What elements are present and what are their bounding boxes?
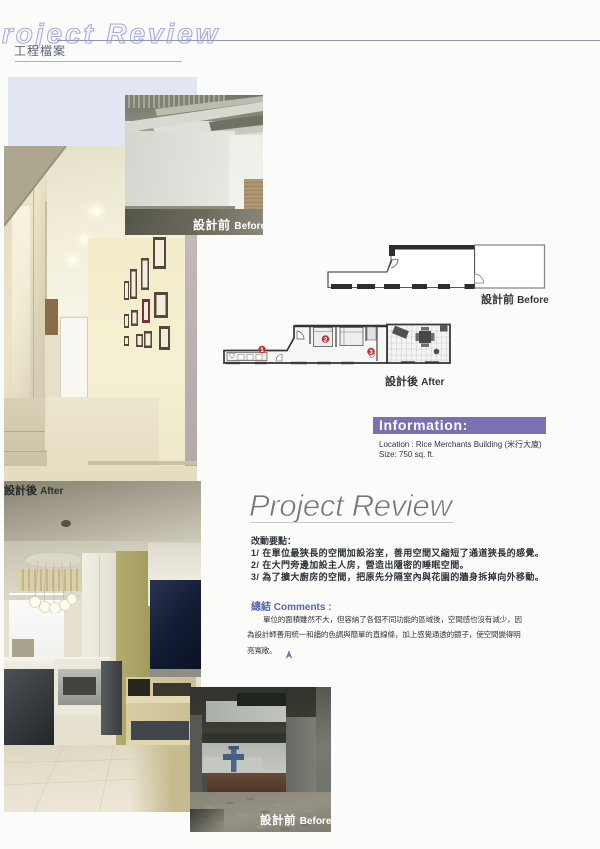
svg-text:2: 2 — [324, 337, 328, 344]
svg-text:1: 1 — [260, 347, 264, 354]
svg-text:3: 3 — [369, 349, 373, 356]
